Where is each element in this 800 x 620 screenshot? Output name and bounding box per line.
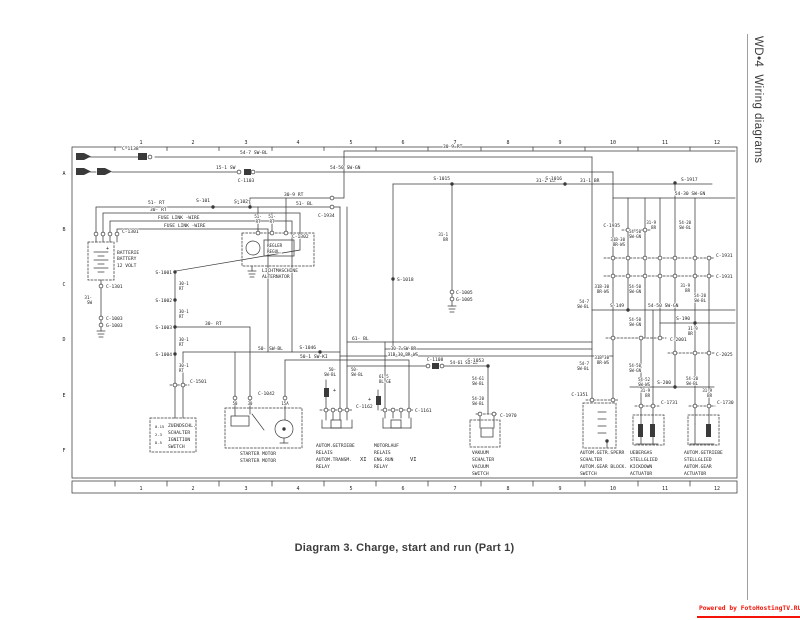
connector-pin — [643, 274, 647, 278]
connector-pin — [693, 404, 697, 408]
wire-label: AUTOM.GEAR BLOCK. — [580, 464, 627, 470]
wire-label: 50-SW-BL — [351, 367, 364, 377]
connector-pin — [99, 316, 103, 320]
wire-label: 30 — [248, 401, 253, 406]
wire-label: AUTOM.GETRIEBE — [684, 450, 723, 456]
wire-label: C-1731 — [661, 400, 678, 406]
wire-label: SCHALTER — [580, 457, 602, 463]
component-outline — [481, 428, 493, 437]
connector-pin — [115, 232, 119, 236]
solid-block — [706, 424, 711, 437]
connector-pin — [338, 408, 342, 412]
splice-dot — [391, 277, 394, 280]
wire-label: C-1931 — [716, 253, 733, 259]
wire-label: RELAIS — [316, 450, 333, 456]
sidebar-title: WD•4 Wiring diagrams — [752, 36, 764, 163]
component-outline — [331, 420, 341, 428]
wire-label: 54-20SW-BL — [686, 376, 699, 386]
wire-label: 0.15 — [155, 424, 164, 429]
connector-pin — [330, 196, 334, 200]
wire-label: STELLGLIED — [630, 457, 658, 463]
wire-label: + — [333, 388, 336, 394]
wire-label: SWITCH — [580, 471, 597, 477]
wire-label: BATTERY — [117, 256, 137, 262]
grid-col-label: 2 — [191, 486, 194, 492]
wire-label: FUSE LINK -WIRE — [158, 215, 200, 221]
solid-block — [76, 168, 84, 175]
watermark-underline — [697, 616, 800, 618]
connector-pin — [639, 404, 643, 408]
grid-col-label: 5 — [349, 140, 352, 146]
wire-label: 54-50SW-GN — [629, 363, 642, 373]
grid-row-label: F — [62, 448, 65, 454]
splice-dot — [605, 439, 608, 442]
wire-label: 31B-30 BR-WS — [388, 352, 419, 357]
wire-label: S-1015 — [433, 176, 450, 182]
grid-col-label: 6 — [401, 140, 404, 146]
grid-col-label: 9 — [558, 486, 561, 492]
grid-col-label: 1 — [139, 140, 142, 146]
solid-block — [244, 169, 251, 175]
connector-pin — [639, 336, 643, 340]
grid-col-label: 7 — [453, 486, 456, 492]
connector-pin — [450, 290, 454, 294]
wire-label: C-1935 — [603, 223, 620, 229]
connector-pin — [440, 364, 444, 368]
connector-pin — [426, 364, 430, 368]
wire-label: C-1970 — [500, 413, 517, 419]
connector-pin — [673, 351, 677, 355]
wire-label: SCHALTER — [168, 430, 190, 436]
grid-col-label: 3 — [244, 486, 247, 492]
arrow-icon — [105, 168, 112, 175]
grid-row-label: C — [62, 282, 65, 288]
connector-pin — [324, 408, 328, 412]
wire-label: SCHALTER — [472, 457, 494, 463]
component-outline — [391, 420, 401, 428]
wire-label: S-1018 — [397, 277, 414, 283]
connector-pin — [693, 351, 697, 355]
watermark-link[interactable]: Powered by FotoHostingTV.RU — [699, 605, 800, 612]
wire-label: 51- BL — [296, 201, 313, 207]
connector-pin — [658, 336, 662, 340]
connector-pin — [707, 256, 711, 260]
wire-label: ACTUATOR — [684, 471, 706, 477]
wire-label: 50- SW-BL — [258, 346, 283, 352]
grid-col-label: 11 — [662, 486, 668, 492]
connector-pin — [256, 231, 260, 235]
wire-label: 30-1RT — [179, 309, 189, 319]
wire-label: 54-52SW-WS — [638, 377, 651, 387]
wire — [110, 221, 292, 352]
wiring-diagram-canvas: 112233445566778899101011111212ABCDEFC-11… — [0, 0, 800, 620]
connector-pin — [94, 232, 98, 236]
wire-label: 54-50SW-GN — [629, 317, 642, 327]
wire-label: 51-RT — [268, 214, 275, 224]
wire-label: 30-1RT — [179, 363, 189, 373]
solid-block — [138, 153, 147, 160]
wire-label: C-1351 — [571, 392, 588, 398]
wire-label: 30- RT — [205, 321, 222, 327]
wire-label: ENG.RUN — [374, 457, 394, 463]
wire-label: SWITCH — [472, 471, 489, 477]
wire-label: 31B-30BR-WS — [595, 284, 610, 294]
grid-col-label: 5 — [349, 486, 352, 492]
wire-label: 50-1 SW-KI — [300, 354, 328, 360]
wire-label: 54-7SW-BL — [577, 299, 590, 309]
wire-label: S-1003 — [155, 325, 172, 331]
wire — [117, 229, 268, 352]
connector-pin — [270, 231, 274, 235]
wire-label: G-1005 — [456, 297, 473, 303]
connector-pin — [611, 398, 615, 402]
wire-label: 54-50 SW-GN — [648, 303, 679, 309]
wire-label: XI — [360, 457, 367, 463]
wire — [250, 198, 330, 207]
wire-label: C-1162 — [356, 404, 373, 410]
connector-pin — [673, 256, 677, 260]
wire-label: VI — [410, 457, 417, 463]
wire-label: 31-9BR — [640, 388, 650, 398]
diagram-caption: Diagram 3. Charge, start and run (Part 1… — [72, 542, 737, 554]
wire-label: LICHTMASCHINE — [262, 268, 298, 274]
connector-pin — [173, 383, 177, 387]
component-box — [688, 415, 719, 445]
wire-label: UEBERGAS — [630, 450, 652, 456]
component-box — [633, 415, 664, 445]
connector-pin — [407, 408, 411, 412]
wire-label: S-149 — [610, 303, 624, 309]
wire-label: + — [106, 246, 109, 252]
wire-label: STARTER MOTOR — [240, 458, 276, 464]
wire-label: C-1301 — [122, 229, 139, 235]
grid-col-label: 9 — [558, 140, 561, 146]
grid-col-label: 1 — [139, 486, 142, 492]
connector-pin — [651, 404, 655, 408]
wire-label: AUTOM.GETRIEBE — [316, 443, 355, 449]
wire-label: IGNITION — [168, 437, 190, 443]
wire-label: 50 — [233, 401, 238, 406]
wire-label: 30-9 RT — [443, 144, 463, 150]
wire-label: 12 VOLT — [117, 263, 137, 269]
connector-pin — [626, 274, 630, 278]
wire-label: RELAY — [374, 464, 388, 470]
wire-label: 50-SW-BL — [324, 367, 337, 377]
wire-label: C-1931 — [716, 274, 733, 280]
connector-pin — [478, 412, 482, 416]
wire-label: STELLGLIED — [684, 457, 712, 463]
wire-label: AUTOM.TRANSM. — [316, 457, 352, 463]
solid-block — [432, 363, 439, 369]
arrow-icon — [84, 153, 91, 160]
connector-pin — [251, 170, 255, 174]
wire-label: S-1001 — [155, 270, 172, 276]
solid-block — [638, 424, 643, 437]
component-box — [88, 242, 114, 280]
wire-label: MOTORLAUF — [374, 443, 399, 449]
solid-block — [650, 424, 655, 437]
grid-col-label: 3 — [244, 140, 247, 146]
grid-col-label: 10 — [610, 140, 616, 146]
solid-block — [97, 168, 105, 175]
grid-col-label: 12 — [714, 486, 720, 492]
connector-pin — [383, 408, 387, 412]
connector-pin — [237, 170, 241, 174]
wire-label: S-1004 — [155, 352, 172, 358]
connector-pin — [673, 274, 677, 278]
splice-dot — [563, 182, 566, 185]
manual-page: 112233445566778899101011111212ABCDEFC-11… — [0, 0, 800, 620]
connector-pin — [99, 284, 103, 288]
grid-row-label: D — [62, 337, 65, 343]
wire-label: 2-3 — [155, 432, 162, 437]
wire-label: C-1138 — [122, 146, 139, 152]
wire-label: S-1917 — [681, 177, 698, 183]
connector-pin — [658, 274, 662, 278]
connector-pin — [450, 297, 454, 301]
wire-label: C-1108 — [427, 357, 444, 363]
splice-dot — [173, 270, 176, 273]
wire-label: 54-7 SW-BL — [240, 150, 268, 156]
wire-label: 61- BL — [352, 336, 369, 342]
grid-col-label: 12 — [714, 140, 720, 146]
wire-label: S-190 — [676, 316, 690, 322]
wire-label: 15A — [281, 401, 289, 406]
sidebar-divider — [747, 34, 748, 600]
wire-label: VAKUUM — [472, 450, 489, 456]
connector-pin — [590, 398, 594, 402]
grid-row-label: B — [62, 227, 65, 233]
wire-label: ACTUATOR — [630, 471, 652, 477]
connector-pin — [148, 155, 152, 159]
wire-label: REGLER — [267, 243, 283, 248]
connector-pin — [693, 274, 697, 278]
connector-pin — [283, 396, 287, 400]
wire-label: SWITCH — [168, 444, 185, 450]
wire-label: AUTOM.GETR.SPERR — [580, 450, 624, 456]
splice-dot — [282, 427, 285, 430]
wire-label: S-1046 — [299, 345, 316, 351]
wire-label: 30- RT — [150, 207, 167, 213]
wire-label: 54-30 SW-GN — [675, 191, 706, 197]
wire-label: C-1042 — [258, 391, 275, 397]
wire-label: C-2001 — [670, 337, 687, 343]
grid-row-label: A — [62, 171, 65, 177]
wire-label: 31-9BR — [680, 283, 690, 293]
wire-label: RELAY — [316, 464, 330, 470]
wire-label: 31-1BR — [438, 232, 448, 242]
wire-label: 54-20SW-BL — [679, 220, 692, 230]
wire-label: 54-50SW-GN — [629, 284, 642, 294]
connector-pin — [643, 228, 647, 232]
grid-col-label: 8 — [506, 486, 509, 492]
wire-label: 30-7 SW-BR — [391, 346, 417, 351]
connector-pin — [399, 408, 403, 412]
wire-label: S-200 — [657, 380, 671, 386]
wire-label: STARTER MOTOR — [240, 451, 276, 457]
wire-label: C-1934 — [318, 213, 335, 219]
wire-label: VACUUM — [472, 464, 489, 470]
wire-label: RELAIS — [374, 450, 391, 456]
wire-label: FUSE LINK -WIRE — [164, 223, 206, 229]
splice-dot — [318, 350, 321, 353]
wire-label: 54-61SW-BL — [472, 376, 485, 386]
wire-label: S-1016 — [545, 176, 562, 182]
grid-col-label: 4 — [296, 140, 299, 146]
connector-pin — [626, 256, 630, 260]
wire-label: 54-20SW-BL — [472, 396, 485, 406]
grid-col-label: 6 — [401, 486, 404, 492]
wire-label: C-1161 — [415, 408, 432, 414]
connector-pin — [658, 256, 662, 260]
wire-label: 51- RT — [148, 200, 165, 206]
wire-label: C-2025 — [716, 352, 733, 358]
grid-row-label: E — [62, 393, 65, 399]
connector-pin — [181, 383, 185, 387]
connector-pin — [345, 408, 349, 412]
wire-label: 31-9BR — [688, 326, 698, 336]
wire-label: D-5 — [155, 440, 162, 445]
connector-pin — [707, 274, 711, 278]
connector-pin — [611, 336, 615, 340]
wire-label: 31-9BR — [702, 388, 712, 398]
solid-block — [324, 388, 329, 397]
wire-label: C-1005 — [456, 290, 473, 296]
wire-label: 31-1 BR — [580, 178, 600, 184]
grid-col-label: 2 — [191, 140, 194, 146]
connector-pin — [233, 396, 237, 400]
connector-pin — [246, 241, 260, 255]
wire-label: 61-5BL-GE — [379, 374, 392, 384]
splice-dot — [211, 205, 214, 208]
arrow-icon — [84, 168, 91, 175]
solid-block — [376, 396, 381, 405]
grid-col-label: 4 — [296, 486, 299, 492]
wire-label: BATTERIE — [117, 250, 139, 256]
wire-label: 54-50SW-GN — [629, 229, 642, 239]
wire-label: 31-SW — [84, 295, 92, 305]
connector-pin — [693, 256, 697, 260]
connector-pin — [611, 256, 615, 260]
connector-pin — [391, 408, 395, 412]
wire-label: REGUL. — [267, 249, 282, 254]
component-box — [583, 403, 616, 448]
wire-label: 54-20SW-BL — [694, 293, 707, 303]
wire-label: AUTOM.GEAR — [684, 464, 712, 470]
connector-pin — [611, 274, 615, 278]
wire — [252, 414, 264, 430]
wire-label: S-1053 — [467, 358, 484, 364]
wire-label: G-1003 — [106, 323, 123, 329]
connector-pin — [284, 231, 288, 235]
wire-label: KICKDOWN — [630, 464, 652, 470]
splice-dot — [486, 364, 489, 367]
component-outline — [231, 416, 249, 426]
wire-label: + — [368, 397, 371, 403]
wire-label: 31-9BR — [646, 220, 656, 230]
wire-label: 54-7SW-BL — [577, 361, 590, 371]
wire-label: C-1302 — [292, 234, 309, 240]
wire-label: 54-50 SW-GN — [330, 165, 361, 171]
splice-dot — [173, 298, 176, 301]
component-box — [470, 420, 500, 447]
wire-label: S-102 — [234, 199, 248, 205]
connector-pin — [707, 351, 711, 355]
wire-label: ALTERNATOR — [262, 274, 290, 280]
splice-dot — [173, 325, 176, 328]
wire-label: C-1003 — [106, 316, 123, 322]
grid-col-label: 11 — [662, 140, 668, 146]
wire-label: 31B-30BR-WS — [595, 355, 610, 365]
splice-dot — [173, 352, 176, 355]
grid-col-label: 10 — [610, 486, 616, 492]
splice-dot — [626, 308, 629, 311]
splice-dot — [673, 181, 676, 184]
wire-label: S-1002 — [155, 298, 172, 304]
splice-dot — [450, 182, 453, 185]
connector-pin — [707, 404, 711, 408]
connector-pin — [101, 232, 105, 236]
wire-label: ZUENDSCHL. — [168, 423, 196, 429]
wire-label: 31B-30BR-WS — [611, 237, 626, 247]
connector-pin — [99, 323, 103, 327]
wire-label: 30-1RT — [179, 281, 189, 291]
connector-pin — [248, 396, 252, 400]
wire-label: C-1730 — [717, 400, 734, 406]
splice-dot — [673, 385, 676, 388]
grid-col-label: 8 — [506, 140, 509, 146]
wire-label: C-1103 — [238, 178, 255, 184]
wire-label: S-101 — [196, 198, 210, 204]
splice-dot — [693, 321, 696, 324]
wire-label: C-1301 — [106, 284, 123, 290]
wire-label: 51-RT — [254, 214, 261, 224]
solid-block — [76, 153, 84, 160]
wire-label: 30-9 RT — [284, 192, 304, 198]
connector-pin — [492, 412, 496, 416]
wire-label: 15-1 SW — [216, 165, 236, 171]
connector-pin — [108, 232, 112, 236]
connector-pin — [330, 205, 334, 209]
connector-pin — [331, 408, 335, 412]
wire-label: C-1501 — [190, 379, 207, 385]
connector-pin — [643, 256, 647, 260]
wire-label: 30-1RT — [179, 337, 189, 347]
